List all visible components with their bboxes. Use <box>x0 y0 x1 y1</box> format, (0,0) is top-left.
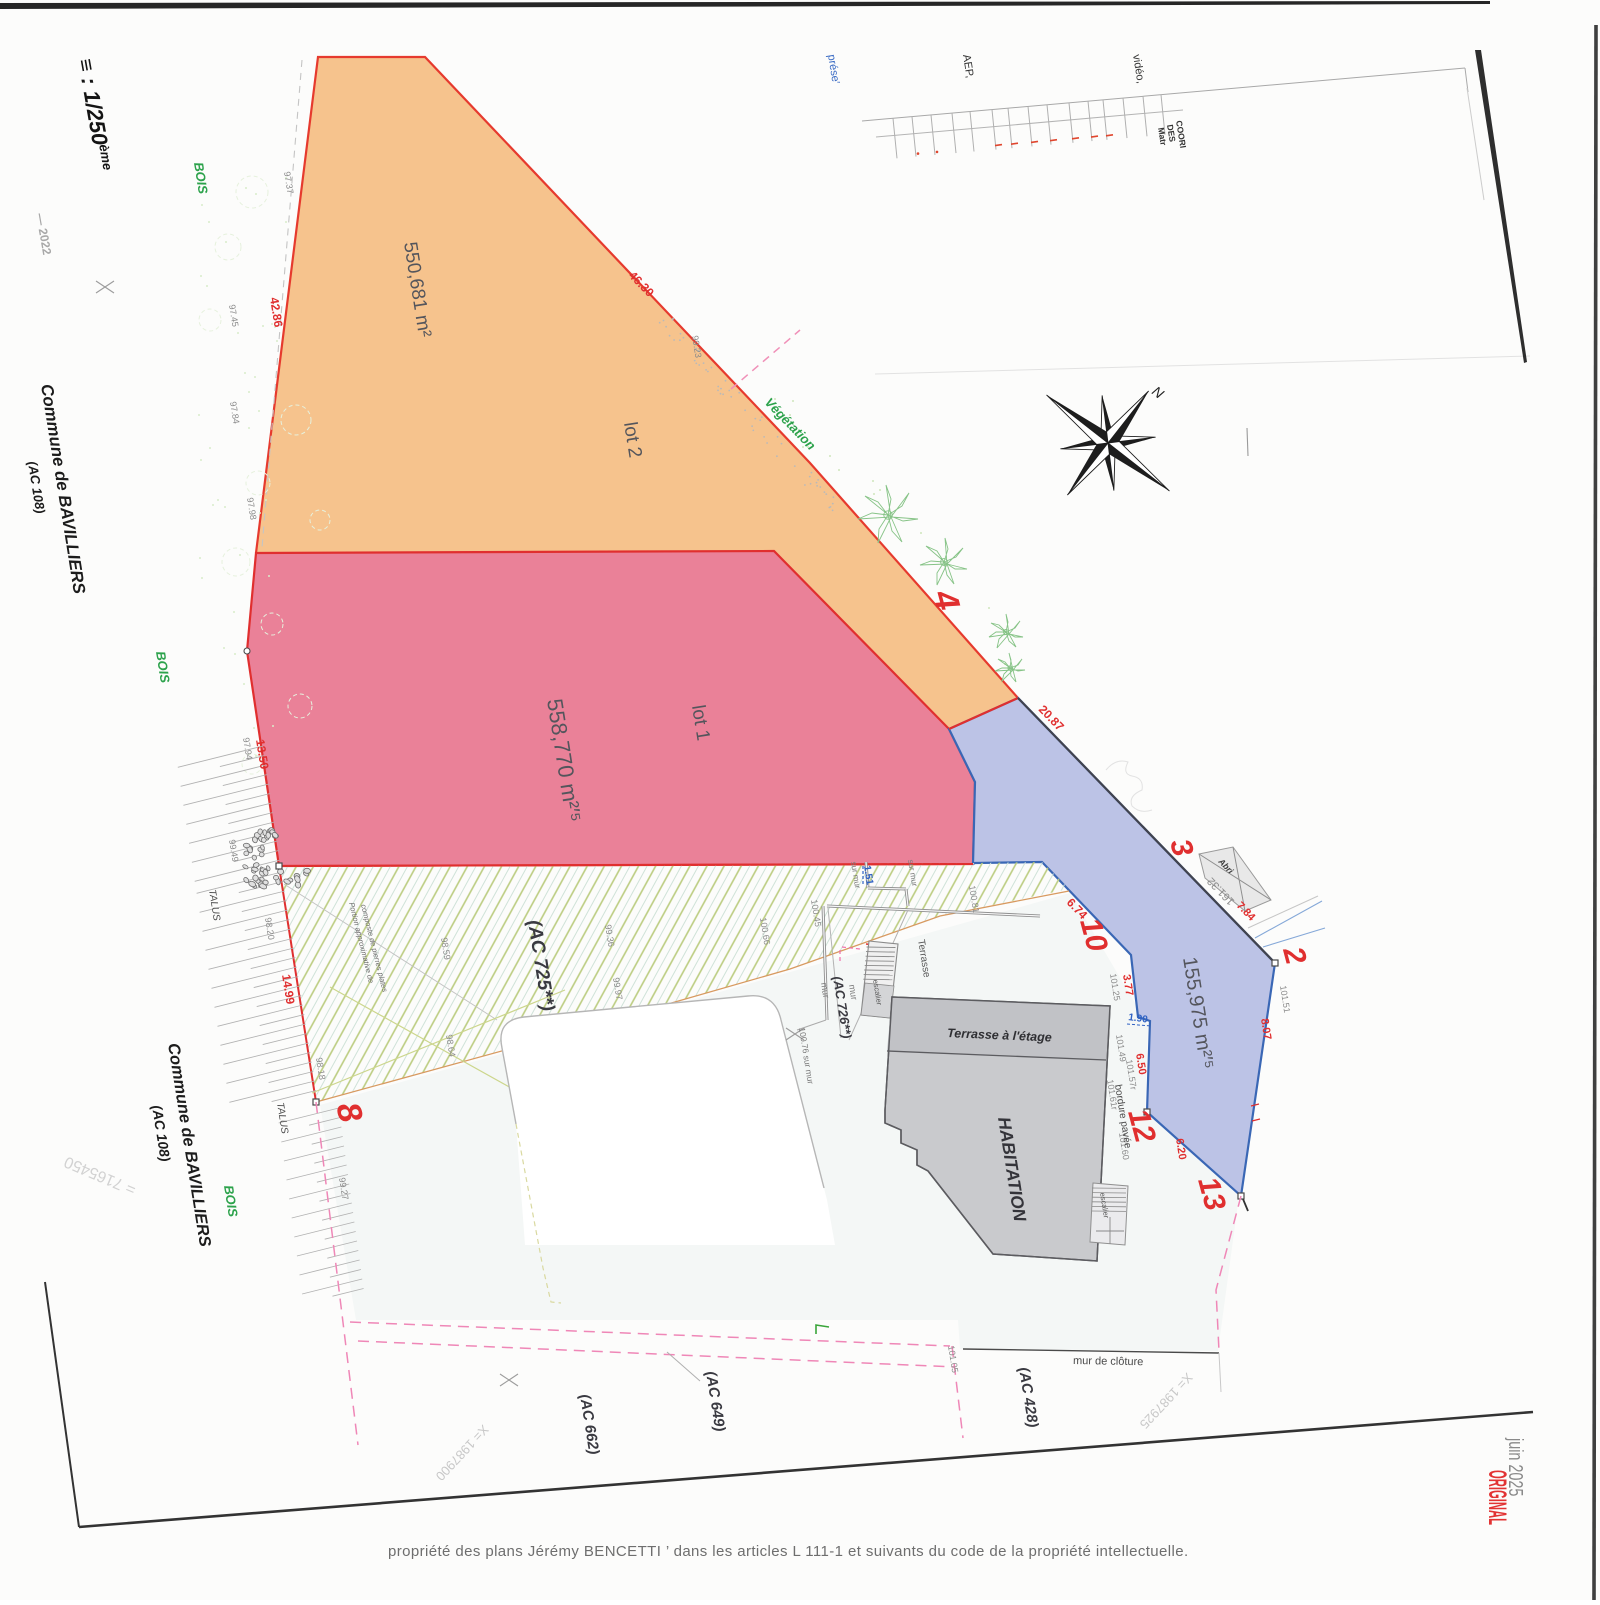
svg-text:mur de clôture: mur de clôture <box>1073 1355 1144 1368</box>
svg-text:propriété des plans Jérémy BEN: propriété des plans Jérémy BENCETTI ’ da… <box>388 1543 1189 1560</box>
svg-text:ORIGINAL: ORIGINAL <box>1483 1470 1511 1525</box>
